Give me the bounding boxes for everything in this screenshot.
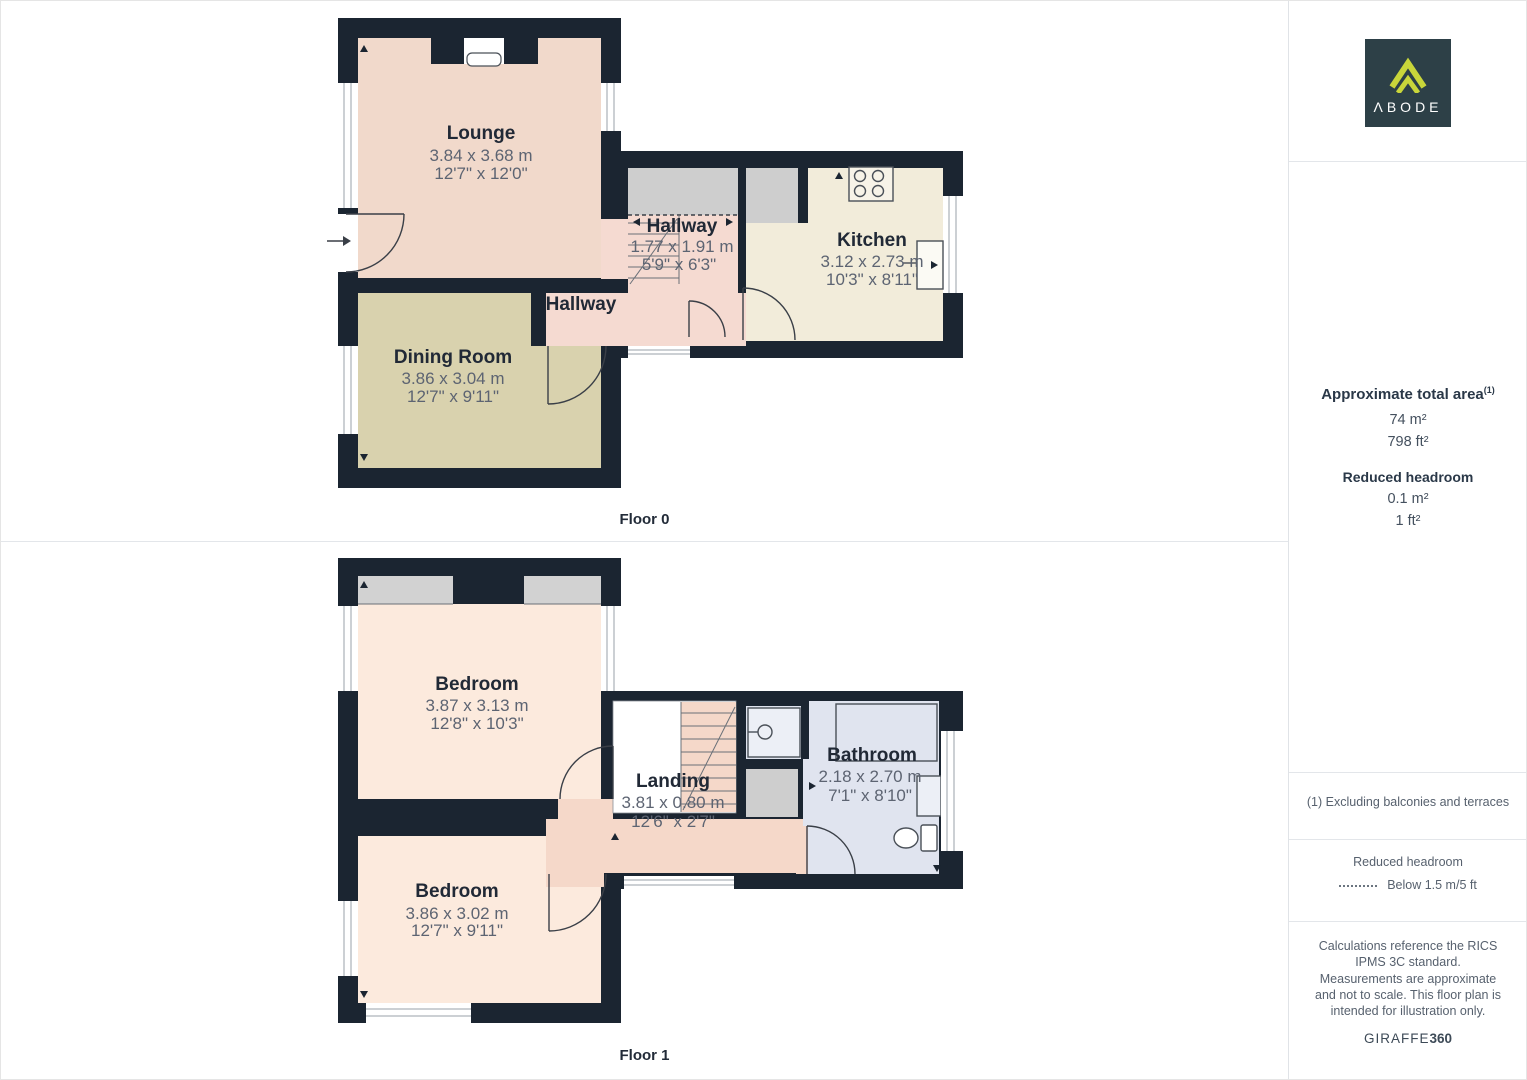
kitchen-cupboard-area (746, 168, 798, 223)
alcove-wall (801, 701, 809, 759)
fireplace-icon (467, 53, 501, 66)
alcove-bottom-wall (746, 759, 803, 769)
room-dims-metric: 3.12 x 2.73 m (820, 252, 923, 271)
total-area-imperial: 798 ft² (1289, 434, 1527, 450)
room-name: Kitchen (837, 230, 907, 251)
room-dims-imperial: 12'6" x 2'7" (631, 812, 715, 831)
room-name: Bedroom (435, 674, 518, 695)
legend-row: Below 1.5 m/5 ft (1289, 878, 1527, 892)
overstairs-reduced-area (746, 769, 798, 817)
room-dims-imperial: 12'7" x 12'0" (434, 164, 527, 183)
legend-title: Reduced headroom (1289, 855, 1527, 869)
room-dims-imperial: 12'7" x 9'11" (411, 921, 503, 940)
room-dims-imperial: 10'3" x 8'11" (826, 270, 918, 289)
total-area-title: Approximate total area(1) (1289, 385, 1527, 404)
room-name: Dining Room (394, 347, 512, 368)
room-name: Hallway (647, 216, 718, 237)
sidebar-divider (1289, 161, 1527, 162)
reduced-headroom-metric: 0.1 m² (1289, 491, 1527, 507)
dashed-line-sample (1339, 885, 1377, 887)
sidebar-divider (1289, 839, 1527, 840)
floor1-label: Floor 1 (1, 1047, 1288, 1064)
reduced-headroom-title: Reduced headroom (1289, 469, 1527, 485)
legend-value: Below 1.5 m/5 ft (1387, 878, 1477, 892)
giraffe360-brand: GIRAFFE360 (1289, 1031, 1527, 1046)
hallway-reduced-headroom-area (628, 168, 738, 215)
room-name: Hallway (546, 294, 617, 315)
logo-text: ΛBODE (1373, 99, 1442, 115)
room-dims-metric: 1.77 x 1.91 m (630, 237, 733, 256)
front-door-opening (338, 214, 358, 272)
wardrobe-left (358, 576, 453, 604)
total-area-label: Approximate total area (1321, 386, 1484, 403)
hob-icon (849, 167, 893, 201)
room-dims-metric: 3.86 x 3.04 m (401, 369, 504, 388)
room-dims-imperial: 12'7" x 9'11" (407, 387, 499, 406)
basin-icon (748, 708, 800, 757)
bedroom1-doorway (558, 799, 613, 819)
room-name: Bathroom (827, 745, 917, 766)
room-name: Bedroom (415, 881, 498, 902)
floor0-plan: Lounge 3.84 x 3.68 m 12'7" x 12'0" Hallw… (1, 1, 1288, 541)
abode-logo: ΛBODE (1365, 39, 1451, 127)
room-name: Lounge (447, 123, 516, 144)
disclaimer-text: Calculations reference the RICS IPMS 3C … (1313, 938, 1503, 1019)
footnote-ref: (1) (1484, 385, 1495, 395)
room-name: Landing (636, 771, 710, 792)
disclaimer-block: Calculations reference the RICS IPMS 3C … (1289, 938, 1527, 1019)
brand-bold: 360 (1429, 1031, 1452, 1046)
sidebar-divider (1289, 772, 1527, 773)
floorplan-viewer: Lounge 3.84 x 3.68 m 12'7" x 12'0" Hallw… (0, 0, 1527, 1080)
lounge-hall-opening (601, 219, 628, 279)
sidebar-divider (1289, 921, 1527, 922)
info-sidebar: ΛBODE Approximate total area(1) 74 m² 79… (1288, 1, 1527, 1080)
chimney-block (453, 558, 524, 604)
room-dims-imperial: 12'8" x 10'3" (430, 714, 523, 733)
abode-chevron-icon (1382, 57, 1434, 93)
room-dims-metric: 3.87 x 3.13 m (425, 696, 528, 715)
floor1-plan: Bedroom 3.87 x 3.13 m 12'8" x 10'3" Land… (1, 541, 1288, 1080)
room-dims-metric: 2.18 x 2.70 m (818, 767, 921, 786)
cupboard-wall (798, 168, 808, 223)
bathroom-doorway (796, 826, 808, 874)
room-dims-imperial: 5'9" x 6'3" (642, 255, 716, 274)
floor0-label: Floor 0 (1, 511, 1288, 528)
room-dims-metric: 3.81 x 0.80 m (621, 793, 724, 812)
room-dims-imperial: 7'1" x 8'10" (828, 786, 912, 805)
reduced-headroom-imperial: 1 ft² (1289, 513, 1527, 529)
brand-normal: GIRAFFE (1364, 1031, 1430, 1046)
total-area-metric: 74 m² (1289, 412, 1527, 428)
bedroom2-doorway (546, 873, 604, 887)
room-dims-metric: 3.84 x 3.68 m (429, 146, 532, 165)
wardrobe-right (524, 576, 601, 604)
balconies-footnote: (1) Excluding balconies and terraces (1289, 795, 1527, 809)
